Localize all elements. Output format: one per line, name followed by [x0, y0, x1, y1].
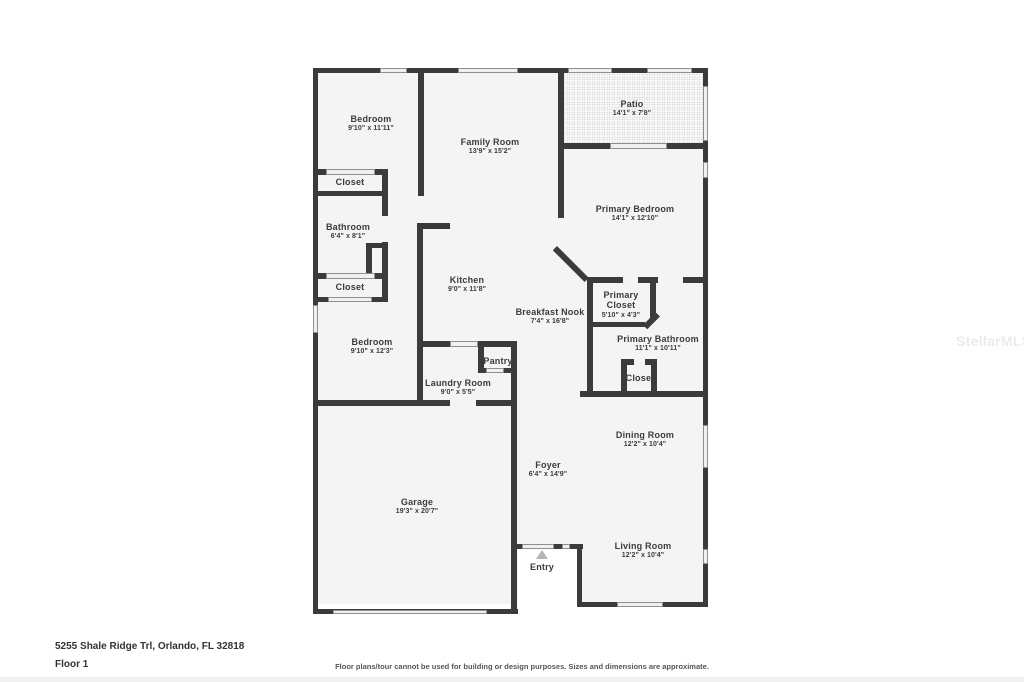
room-dims: 14'1" x 12'10" — [596, 215, 675, 223]
wall — [417, 223, 423, 406]
exterior-cut — [577, 607, 708, 614]
wall — [313, 191, 388, 196]
room-label-kitchen: Kitchen 9'0" x 11'8" — [448, 275, 486, 294]
room-name: Dining Room — [616, 430, 674, 440]
wall — [558, 68, 564, 150]
room-name: Foyer — [529, 460, 567, 470]
room-dims: 7'4" x 16'8" — [516, 318, 585, 326]
room-dims: 6'4" x 8'1" — [326, 233, 370, 241]
room-name: Bedroom — [348, 114, 394, 124]
wall — [417, 223, 450, 229]
room-dims: 13'9" x 15'2" — [461, 148, 520, 156]
window — [458, 68, 518, 73]
room-dims: 9'10" x 11'11" — [348, 125, 394, 133]
wall — [580, 391, 708, 397]
window — [703, 162, 708, 178]
bottom-strip — [0, 677, 1024, 682]
closet-door — [328, 297, 372, 302]
room-name: Entry — [530, 562, 554, 572]
wall — [577, 544, 582, 607]
sliding-door — [610, 143, 667, 149]
door — [486, 368, 504, 373]
patio-screen — [647, 68, 692, 73]
room-name: Garage — [396, 497, 438, 507]
window — [703, 425, 708, 468]
room-dims: 11'1" x 10'11" — [617, 345, 699, 353]
window — [313, 305, 318, 333]
room-label-bedroom-1: Bedroom 9'10" x 11'11" — [348, 114, 394, 133]
room-name: Primary Bathroom — [617, 334, 699, 344]
room-label-bathroom: Bathroom 6'4" x 8'1" — [326, 222, 370, 241]
closet-door — [326, 273, 375, 279]
wall — [417, 341, 450, 347]
room-label-bedroom-2: Bedroom 9'10" x 12'3" — [351, 337, 393, 356]
room-name: Primary Closet — [595, 290, 647, 311]
wall — [511, 341, 517, 609]
floor-label: Floor 1 — [55, 659, 88, 670]
room-dims: 9'10" x 12'3" — [351, 348, 393, 356]
room-label-pantry: Pantry — [483, 356, 512, 366]
room-name: Living Room — [615, 541, 672, 551]
patio-screen — [703, 86, 708, 141]
room-name: Closet — [626, 373, 655, 383]
wall — [683, 277, 708, 283]
window — [562, 544, 570, 549]
wall — [418, 68, 424, 196]
room-dims: 9'0" x 5'5" — [425, 389, 491, 397]
window — [380, 68, 407, 73]
floorplan-canvas: Bedroom 9'10" x 11'11" Family Room 13'9"… — [0, 0, 1024, 682]
entry-door — [522, 544, 554, 549]
room-name: Closet — [336, 282, 365, 292]
room-name: Laundry Room — [425, 378, 491, 388]
room-dims: 9'0" x 11'8" — [448, 286, 486, 294]
room-dims: 19'3" x 20'7" — [396, 508, 438, 516]
room-name: Closet — [336, 177, 365, 187]
room-label-closet-primary-bath: Closet — [626, 373, 655, 383]
room-label-primary-bathroom: Primary Bathroom 11'1" x 10'11" — [617, 334, 699, 353]
room-label-laundry-room: Laundry Room 9'0" x 5'5" — [425, 378, 491, 397]
wall — [382, 191, 388, 216]
window — [617, 602, 663, 607]
wall — [313, 68, 318, 614]
room-label-family-room: Family Room 13'9" x 15'2" — [461, 137, 520, 156]
wall — [645, 359, 657, 365]
address-text: 5255 Shale Ridge Trl, Orlando, FL 32818 — [55, 641, 244, 652]
room-label-closet-a: Closet — [336, 177, 365, 187]
wall — [587, 277, 593, 397]
room-label-foyer: Foyer 6'4" x 14'9" — [529, 460, 567, 479]
room-label-closet-b: Closet — [336, 282, 365, 292]
room-name: Bathroom — [326, 222, 370, 232]
room-label-dining-room: Dining Room 12'2" x 10'4" — [616, 430, 674, 449]
room-label-living-room: Living Room 12'2" x 10'4" — [615, 541, 672, 560]
room-name: Patio — [613, 99, 651, 109]
room-dims: 5'10" x 4'3" — [595, 312, 647, 320]
room-label-patio: Patio 14'1" x 7'8" — [613, 99, 651, 118]
room-label-primary-bedroom: Primary Bedroom 14'1" x 12'10" — [596, 204, 675, 223]
window — [703, 549, 708, 564]
room-label-breakfast-nook: Breakfast Nook 7'4" x 16'8" — [516, 307, 585, 326]
room-name: Pantry — [483, 356, 512, 366]
room-dims: 12'2" x 10'4" — [615, 552, 672, 560]
closet-door — [326, 169, 375, 175]
room-label-garage: Garage 19'3" x 20'7" — [396, 497, 438, 516]
room-name: Primary Bedroom — [596, 204, 675, 214]
wall — [476, 400, 517, 406]
entry-arrow-icon — [536, 550, 548, 559]
wall — [558, 143, 564, 218]
door — [450, 341, 478, 347]
room-name: Family Room — [461, 137, 520, 147]
room-label-entry: Entry — [530, 562, 554, 572]
room-name: Kitchen — [448, 275, 486, 285]
wall — [590, 322, 645, 327]
patio-screen — [568, 68, 612, 73]
garage-door — [333, 610, 487, 614]
room-dims: 6'4" x 14'9" — [529, 471, 567, 479]
wall — [621, 359, 634, 365]
room-name: Bedroom — [351, 337, 393, 347]
disclaimer-text: Floor plans/tour cannot be used for buil… — [335, 662, 709, 671]
room-name: Breakfast Nook — [516, 307, 585, 317]
room-label-primary-closet: Primary Closet 5'10" x 4'3" — [595, 290, 647, 320]
stellar-mls-watermark: StellarMLS — [956, 333, 1024, 349]
wall — [313, 400, 450, 406]
wall — [382, 273, 388, 302]
room-dims: 12'2" x 10'4" — [616, 441, 674, 449]
room-dims: 14'1" x 7'8" — [613, 110, 651, 118]
